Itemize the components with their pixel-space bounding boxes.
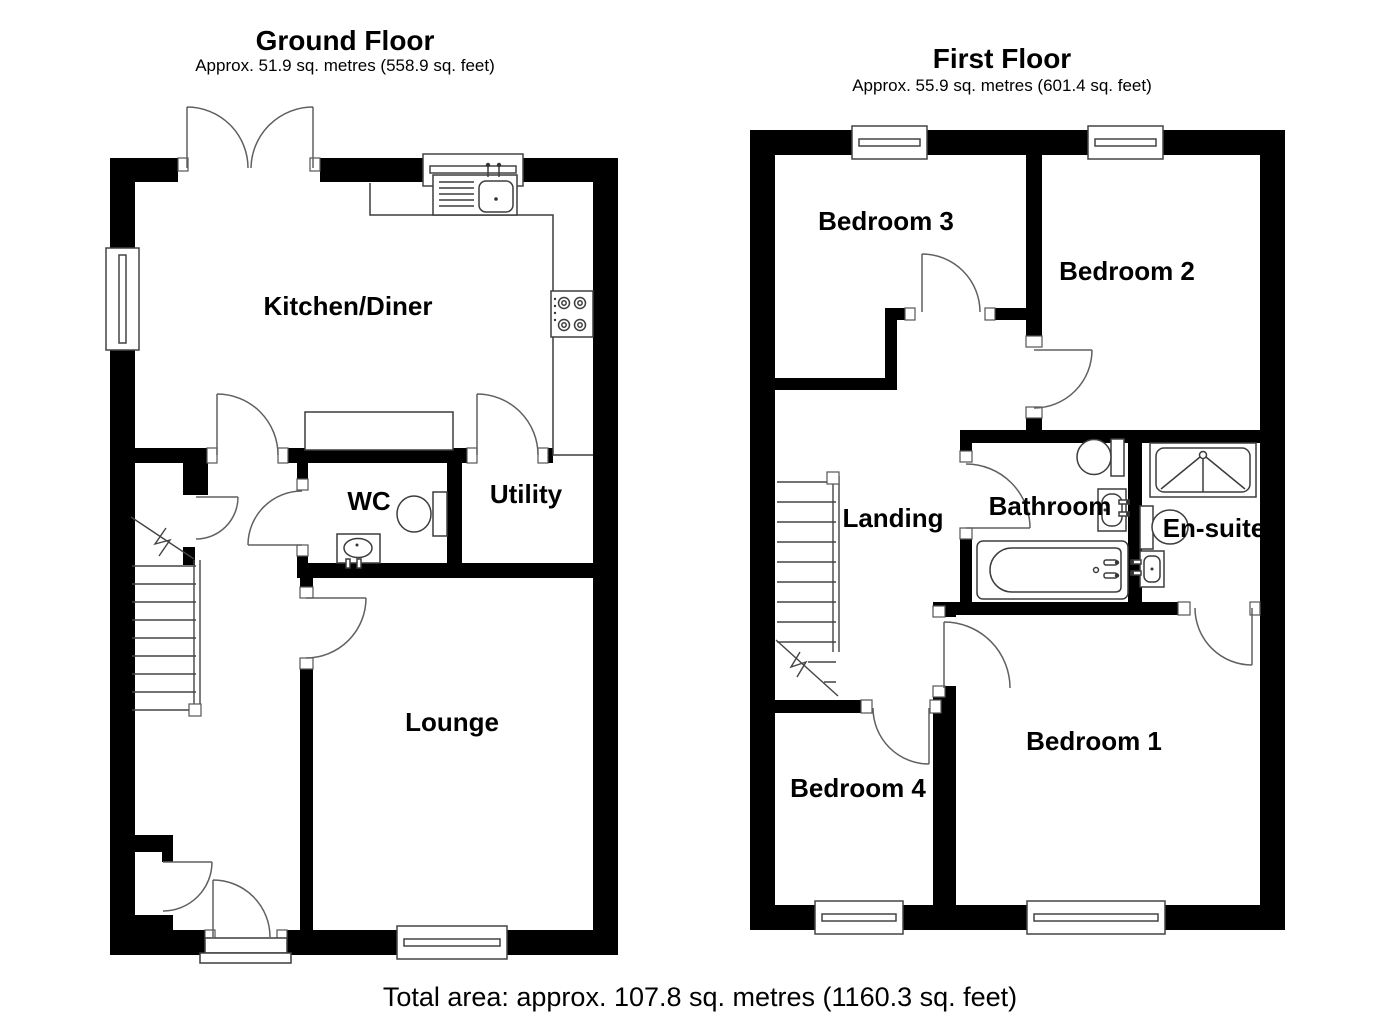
room-label-bathroom: Bathroom [989, 491, 1112, 521]
kitchen-cupboard [305, 412, 453, 450]
room-label-bedroom3: Bedroom 3 [818, 206, 954, 236]
lounge-door [306, 598, 366, 658]
bedroom4-door [873, 708, 929, 764]
wc-door [248, 491, 302, 545]
cupboard-door [163, 862, 212, 911]
first-floor-title: First Floor [933, 43, 1072, 74]
wc-toilet [397, 492, 447, 536]
room-label-wc: WC [347, 486, 391, 516]
ensuite-door [1195, 608, 1252, 665]
bedroom1-window [1027, 901, 1165, 934]
hob [551, 291, 593, 337]
room-label-utility: Utility [490, 479, 563, 509]
bedroom3-door [922, 254, 980, 312]
ground-floor-subtitle: Approx. 51.9 sq. metres (558.9 sq. feet) [195, 56, 495, 75]
hall-store-door [196, 497, 238, 539]
french-door-right [251, 107, 313, 168]
kitchen-hall-door [217, 394, 278, 455]
lounge-window [397, 926, 507, 959]
kitchen-side-window [106, 248, 139, 350]
bedroom2-window [1088, 126, 1163, 159]
room-label-ensuite: En-suite [1163, 513, 1266, 543]
first-floor-plan: First Floor Approx. 55.9 sq. metres (601… [750, 43, 1285, 934]
bathroom-toilet [1077, 439, 1124, 476]
front-door-step [200, 938, 291, 963]
room-label-lounge: Lounge [405, 707, 499, 737]
shower [1150, 443, 1256, 497]
floorplan-page: Ground Floor Approx. 51.9 sq. metres (55… [0, 0, 1400, 1018]
bedroom2-door [1034, 350, 1092, 408]
ground-floor-plan: Ground Floor Approx. 51.9 sq. metres (55… [106, 25, 618, 963]
bedroom4-window [815, 901, 903, 934]
room-label-bedroom2: Bedroom 2 [1059, 256, 1195, 286]
total-area-label: Total area: approx. 107.8 sq. metres (11… [383, 982, 1017, 1012]
room-label-kitchen-diner: Kitchen/Diner [263, 291, 432, 321]
ground-floor-title: Ground Floor [256, 25, 435, 56]
wc-basin [337, 534, 380, 568]
utility-door [477, 394, 538, 455]
front-door [213, 880, 270, 937]
bedroom1-door [944, 622, 1010, 688]
room-label-bedroom1: Bedroom 1 [1026, 726, 1162, 756]
bedroom3-window [852, 126, 927, 159]
room-label-landing: Landing [842, 503, 943, 533]
room-label-bedroom4: Bedroom 4 [790, 773, 926, 803]
floorplan-drawing: Ground Floor Approx. 51.9 sq. metres (55… [0, 0, 1400, 1018]
stairs-ground [131, 517, 201, 716]
stairs-first [776, 472, 839, 696]
bath [977, 541, 1128, 599]
first-floor-subtitle: Approx. 55.9 sq. metres (601.4 sq. feet) [852, 76, 1152, 95]
french-door-left [187, 107, 248, 168]
